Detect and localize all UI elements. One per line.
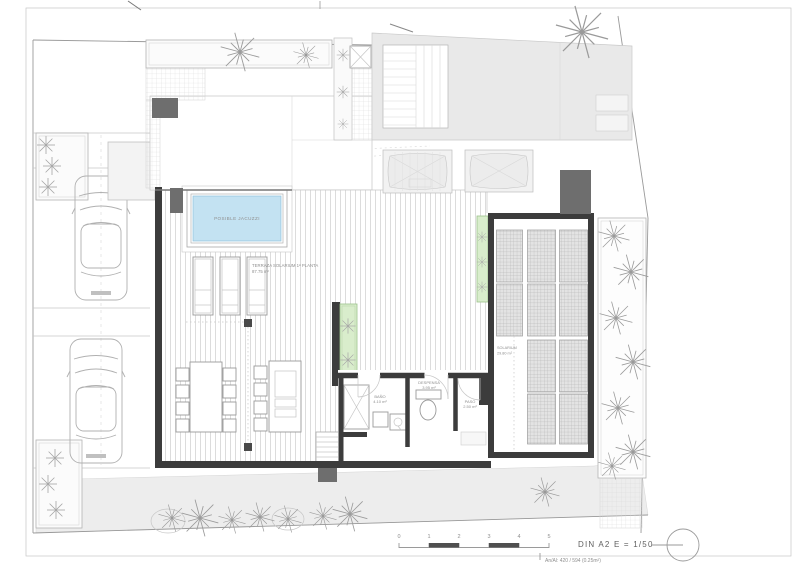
dining-table xyxy=(190,362,222,432)
side-path-hatch xyxy=(600,478,642,528)
plant-icon xyxy=(39,178,57,196)
bathroom-block: BAÑO 4.10 m² DESPENSA 3.95 m² PASO 2.50 … xyxy=(338,370,494,466)
sheet-format-label: DIN A2 E = 1/50 xyxy=(578,540,654,549)
plant-icon xyxy=(37,136,55,154)
solarium-label: SOLARIUM xyxy=(497,346,517,350)
dining-set xyxy=(176,362,236,432)
plant-icon xyxy=(340,318,355,333)
svg-text:4.10 m²: 4.10 m² xyxy=(373,399,387,404)
scale-bar: 0 1 2 3 4 5 xyxy=(397,534,550,548)
fold-mark xyxy=(390,24,413,32)
terrace-name: TERRAZA SOLARIUM 1ª PLANTA xyxy=(252,263,318,268)
svg-text:29.80 m²: 29.80 m² xyxy=(497,352,513,356)
svg-text:3.95 m²: 3.95 m² xyxy=(422,385,436,390)
sun-lounger xyxy=(220,257,240,315)
grid-panel xyxy=(528,284,556,336)
plant-icon xyxy=(477,232,488,243)
plant-icon xyxy=(39,475,57,493)
title-block: DIN A2 E = 1/50 An/Al: 420 / 594 (0.25m²… xyxy=(540,529,699,564)
scale-number: 0 xyxy=(397,534,400,540)
plant-icon xyxy=(47,501,65,519)
scale-number: 3 xyxy=(487,534,490,540)
chimney-block xyxy=(170,188,183,213)
grid-panel xyxy=(497,230,523,282)
shade-sail xyxy=(465,150,533,192)
top-planter-strip xyxy=(146,33,332,72)
fold-mark xyxy=(128,1,141,10)
chimney-block xyxy=(152,98,178,118)
post xyxy=(244,443,252,451)
neighbor-roof xyxy=(350,33,632,140)
chimney-block xyxy=(318,468,337,482)
green-planter xyxy=(477,216,488,302)
sheet-info-label: An/Al: 420 / 594 (0.25m²) xyxy=(545,558,601,564)
plant-icon xyxy=(43,157,61,175)
shade-sails xyxy=(383,150,533,193)
chimney-block xyxy=(560,170,591,214)
scale-number: 5 xyxy=(547,534,550,540)
plant-icon xyxy=(337,49,350,62)
grid-panel xyxy=(560,230,588,282)
plan-sheet: POSIBLE JACUZZI TERRAZA SOLARIUM 1ª PLAN… xyxy=(0,0,799,565)
svg-text:2.50 m²: 2.50 m² xyxy=(463,404,477,409)
plant-icon xyxy=(477,282,488,293)
counter xyxy=(461,432,486,445)
scale-number: 1 xyxy=(427,534,430,540)
grid-panel xyxy=(528,230,556,282)
terrace-steps xyxy=(316,432,340,462)
grid-panel xyxy=(497,284,523,336)
plant-icon xyxy=(477,257,488,268)
side-path-hatch xyxy=(146,68,205,100)
jacuzzi-pool: POSIBLE JACUZZI xyxy=(182,186,292,252)
plant-icon xyxy=(340,352,355,367)
plant-icon xyxy=(337,86,350,99)
post xyxy=(244,319,252,327)
scale-segment-filled xyxy=(429,543,459,548)
sun-lounger xyxy=(193,257,213,315)
grid-panel xyxy=(528,394,556,444)
side-path-hatch xyxy=(352,68,372,140)
terrace-area: 87.75 m² xyxy=(252,269,270,274)
grid-panel xyxy=(528,340,556,392)
shade-sail xyxy=(383,150,452,193)
skylight xyxy=(350,46,371,68)
site-plan-drawing: POSIBLE JACUZZI TERRAZA SOLARIUM 1ª PLAN… xyxy=(0,0,799,565)
right-planter-strip xyxy=(598,218,650,478)
jacuzzi-label: POSIBLE JACUZZI xyxy=(214,216,260,221)
grid-panel xyxy=(560,284,588,336)
scale-number: 4 xyxy=(517,534,520,540)
roof-stairs xyxy=(383,45,448,128)
plant-icon xyxy=(46,449,64,467)
plant-icon xyxy=(338,119,349,130)
scale-number: 2 xyxy=(457,534,460,540)
solarium-area: SOLARIUM 29.80 m² xyxy=(494,219,588,452)
grid-panel xyxy=(560,340,588,392)
scale-segment-filled xyxy=(489,543,519,548)
grid-panel xyxy=(560,394,588,444)
